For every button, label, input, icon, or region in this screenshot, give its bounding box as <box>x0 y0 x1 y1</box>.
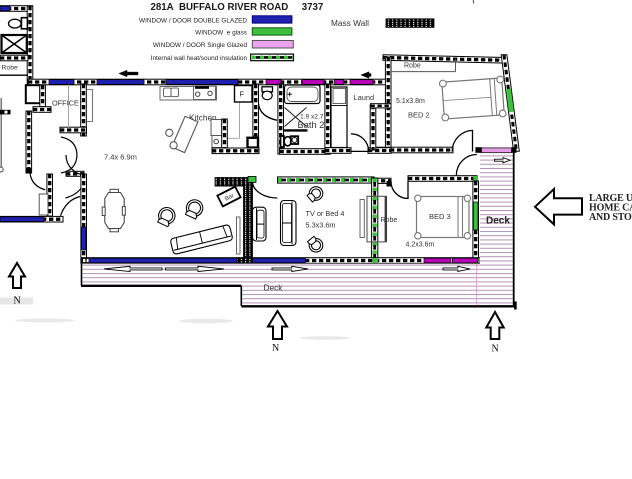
svg-text:TV or Bed 4: TV or Bed 4 <box>306 209 345 218</box>
svg-text:OFFICE: OFFICE <box>52 99 79 108</box>
svg-text:AND STORAGE: AND STORAGE <box>589 212 632 223</box>
svg-text:Laund: Laund <box>354 93 375 102</box>
svg-text:Robe: Robe <box>404 62 421 69</box>
svg-text:WINDOW / DOOR Single Glazed: WINDOW / DOOR Single Glazed <box>153 42 248 49</box>
svg-text:N: N <box>14 296 21 307</box>
svg-text:WINDOW / DOOR DOUBLE GLAZED: WINDOW / DOOR DOUBLE GLAZED <box>139 18 247 25</box>
svg-text:5.3x3.6m: 5.3x3.6m <box>306 221 336 230</box>
svg-text:N: N <box>492 344 499 355</box>
svg-text:4.2x3.6m: 4.2x3.6m <box>406 242 435 249</box>
svg-text:Robe: Robe <box>381 217 398 224</box>
svg-text:F: F <box>240 90 245 99</box>
svg-text:5.1x3.8m: 5.1x3.8m <box>396 98 425 105</box>
svg-text:BED 3: BED 3 <box>429 212 451 221</box>
svg-text:Deck: Deck <box>264 283 284 293</box>
svg-text:7.4x 6.9m: 7.4x 6.9m <box>104 153 137 162</box>
svg-text:N: N <box>272 343 279 354</box>
svg-text:Bath 2: Bath 2 <box>298 120 325 130</box>
svg-text:BED 2: BED 2 <box>408 111 430 120</box>
svg-text:281A BUFFALO RIVER ROAD 3: 281A BUFFALO RIVER ROAD 3737 <box>151 2 324 13</box>
svg-text:Internal wall heat/sound insul: Internal wall heat/sound insulation <box>151 55 248 62</box>
svg-text:Mass Wall: Mass Wall <box>331 18 369 28</box>
svg-text:Robe: Robe <box>2 65 18 72</box>
svg-text:Deck: Deck <box>486 216 510 227</box>
svg-text:WINDOW e glass: WINDOW e glass <box>195 29 247 36</box>
